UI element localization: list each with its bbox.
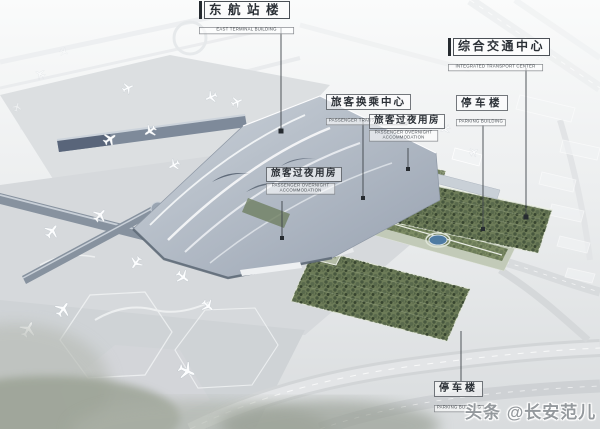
- callout-subtitle: PARKING BUILDING: [456, 119, 506, 126]
- callout-title: 综合交通中心: [453, 38, 550, 56]
- callout-title: 旅客换乘中心: [326, 94, 411, 110]
- callout-title: 停车楼: [456, 95, 508, 111]
- callout-subtitle: PASSENGER OVERNIGHT ACCOMMODATION: [369, 130, 438, 142]
- callout-overnight-right: 旅客过夜用房 PASSENGER OVERNIGHT ACCOMMODATION: [369, 114, 465, 147]
- callout-title: 旅客过夜用房: [369, 114, 445, 129]
- callout-title: 旅客过夜用房: [266, 167, 342, 182]
- callout-title: 停车楼: [434, 381, 483, 397]
- callout-subtitle: EAST TERMINAL BUILDING: [199, 27, 294, 34]
- watermark-text: 头条 @长安范儿: [465, 398, 596, 423]
- callout-overnight-left: 旅客过夜用房 PASSENGER OVERNIGHT ACCOMMODATION: [266, 167, 362, 200]
- callout-title: 东航站楼: [204, 1, 290, 19]
- callout-subtitle: INTEGRATED TRANSPORT CENTER: [448, 64, 543, 71]
- callout-parking-top: 停车楼 PARKING BUILDING: [456, 95, 525, 129]
- callout-accent-bar: [199, 1, 202, 19]
- callout-subtitle: PASSENGER OVERNIGHT ACCOMMODATION: [266, 183, 335, 195]
- airport-rendering: 东航站楼 EAST TERMINAL BUILDING 综合交通中心 INTEG…: [0, 0, 600, 429]
- callout-accent-bar: [448, 38, 451, 56]
- pond-east: [429, 235, 447, 245]
- callout-east-terminal: 东航站楼 EAST TERMINAL BUILDING: [199, 1, 331, 37]
- callout-transport-center: 综合交通中心 INTEGRATED TRANSPORT CENTER: [448, 38, 580, 74]
